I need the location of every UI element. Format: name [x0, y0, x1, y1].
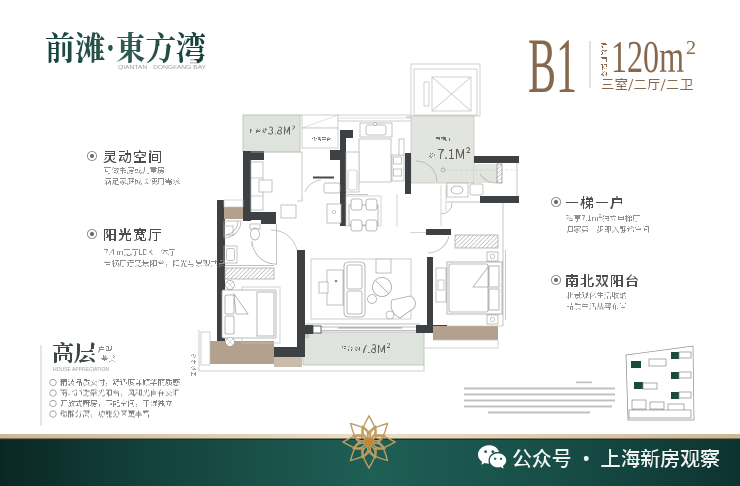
svg-text:B1: B1	[528, 22, 577, 109]
svg-text:120m: 120m	[611, 31, 684, 82]
svg-text:HOUSE APPRECIATION: HOUSE APPRECIATION	[53, 367, 109, 373]
svg-text:QIANTAN · DONGFANG BAY: QIANTAN · DONGFANG BAY	[118, 65, 206, 71]
svg-text:2: 2	[686, 37, 696, 59]
